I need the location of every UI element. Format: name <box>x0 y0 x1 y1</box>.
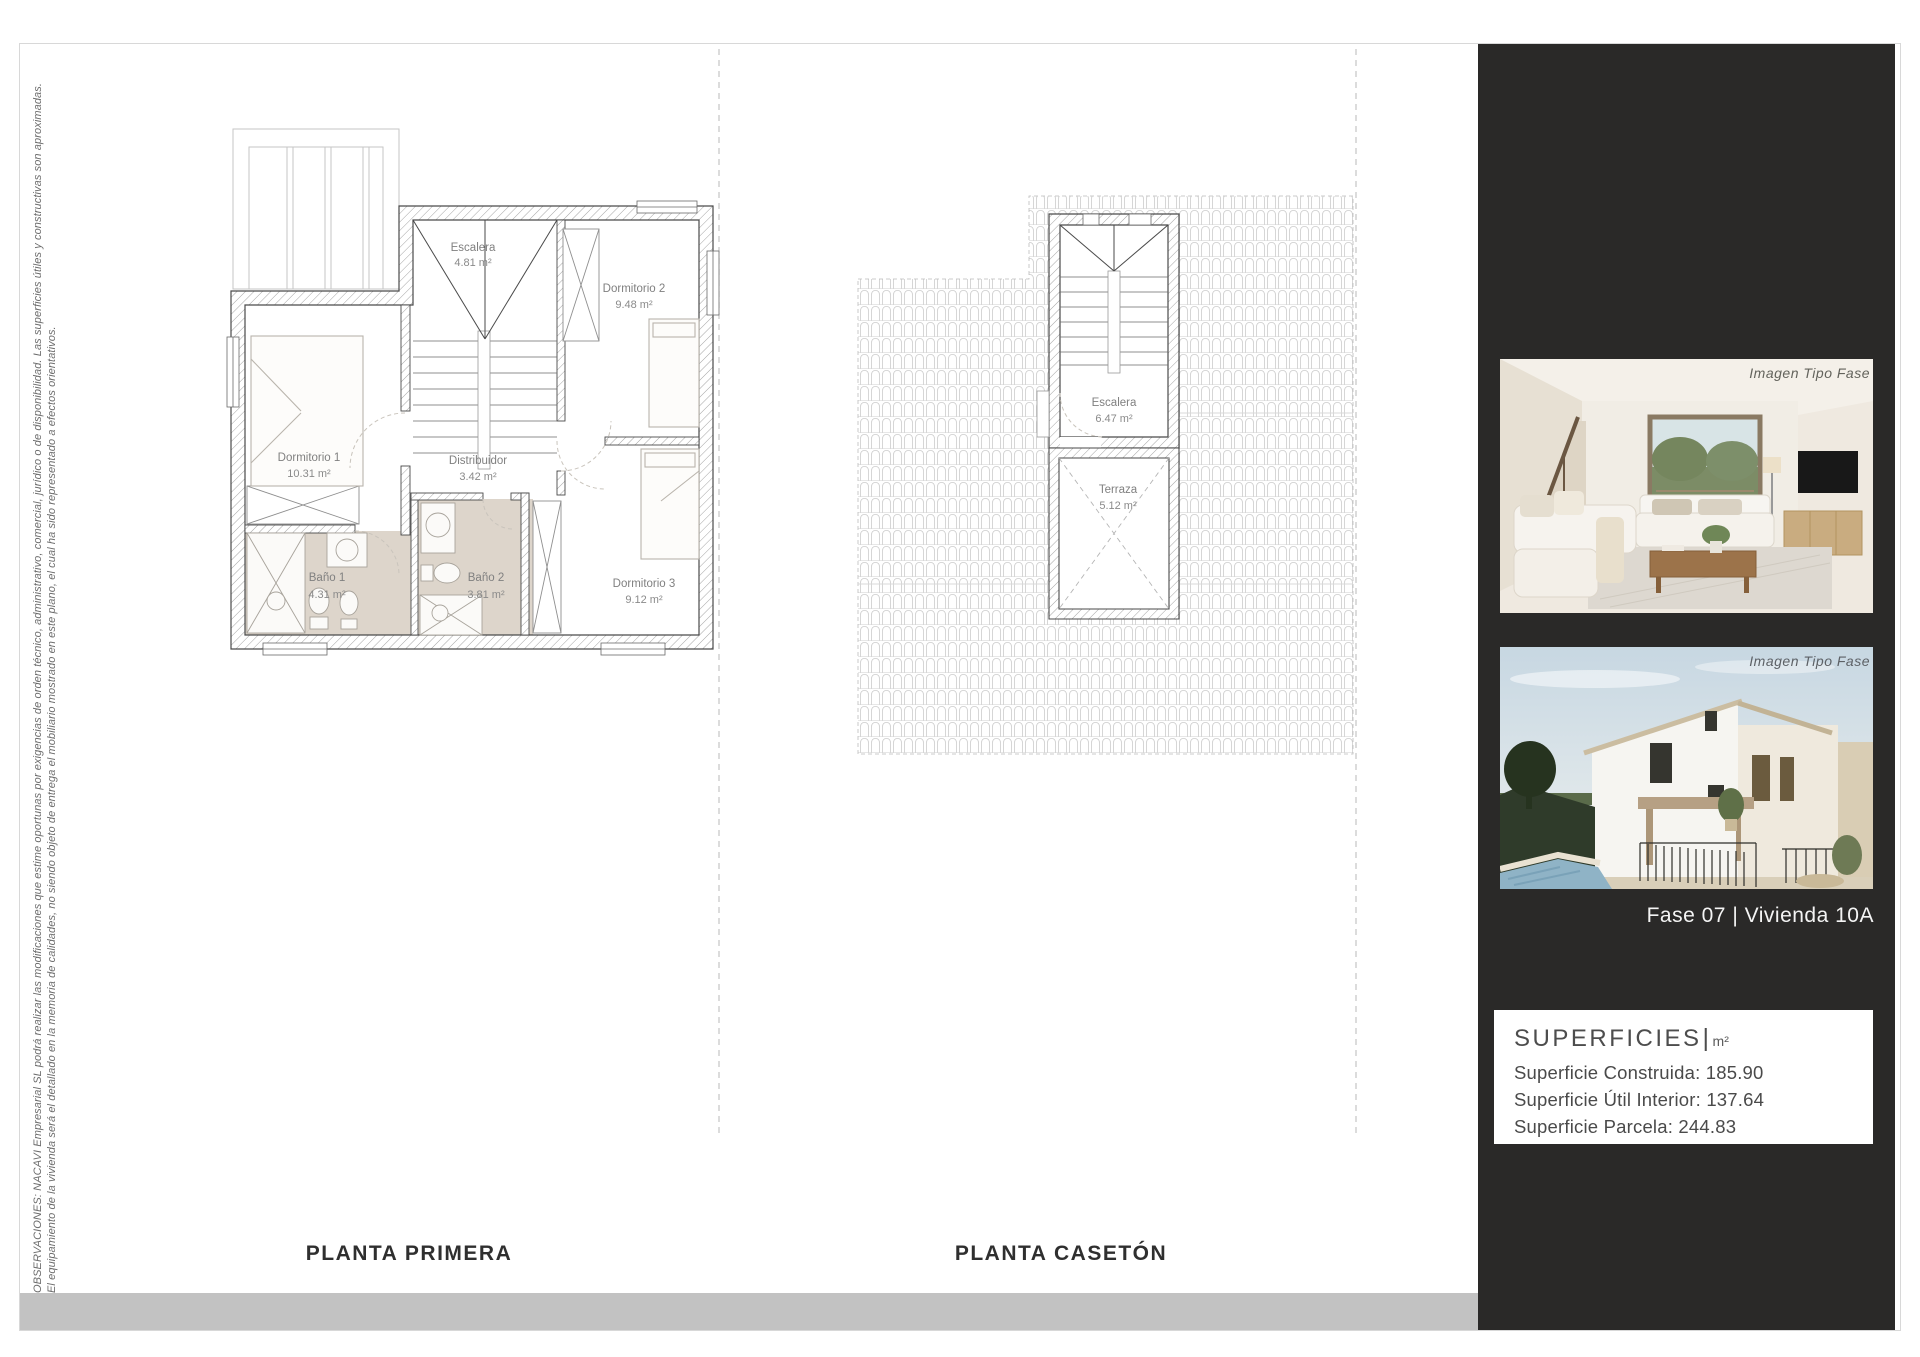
pergola-outline <box>233 129 399 289</box>
interior-illustration <box>1500 359 1873 613</box>
room-area-terraza: 5.12 m² <box>1099 500 1137 512</box>
plan-planta-primera: Escalera 4.81 m² Dormitorio 2 9.48 m² Do… <box>227 129 719 655</box>
caseton-door-niche <box>1037 391 1049 437</box>
room-area-dormitorio3: 9.12 m² <box>625 594 663 606</box>
unit-label: Fase 07 | Vivienda 10A <box>1647 904 1874 928</box>
room-area-bano2: 3.81 m² <box>467 589 505 601</box>
room-area-dormitorio1: 10.31 m² <box>287 468 331 480</box>
room-label-bano2: Baño 2 <box>468 572 504 584</box>
exterior-photo-caption: Imagen Tipo Fase <box>1749 653 1870 669</box>
superficies-panel: SUPERFICIES|m² Superficie Construida: 18… <box>1494 1010 1873 1144</box>
exterior-photo: Imagen Tipo Fase <box>1500 647 1873 889</box>
sidebar: Imagen Tipo Fase <box>1478 44 1895 1331</box>
plan-title-planta-primera: PLANTA PRIMERA <box>306 1242 513 1266</box>
brochure-page: OBSERVACIONES: NACAVI Empresarial SL pod… <box>19 43 1901 1331</box>
superficies-unit: m² <box>1713 1033 1729 1049</box>
room-label-terraza: Terraza <box>1099 484 1138 496</box>
superficie-parcela: Superficie Parcela: 244.83 <box>1514 1113 1873 1140</box>
room-label-escalera: Escalera <box>451 242 496 254</box>
superficies-separator: | <box>1702 1024 1713 1052</box>
plan-planta-caseton: Escalera 6.47 m² Terraza 5.12 m² <box>858 196 1353 754</box>
plan-title-planta-caseton: PLANTA CASETÓN <box>955 1242 1167 1266</box>
superficies-title: SUPERFICIES|m² <box>1514 1024 1873 1053</box>
room-area-distribuidor: 3.42 m² <box>459 471 497 483</box>
room-label-distribuidor: Distribuidor <box>449 455 507 467</box>
caseton-door-gap <box>1060 437 1101 448</box>
room-label-caseton-escalera: Escalera <box>1092 397 1137 409</box>
room-area-bano1: 4.31 m² <box>308 589 346 601</box>
exterior-illustration <box>1500 647 1873 889</box>
superficie-construida: Superficie Construida: 185.90 <box>1514 1059 1873 1086</box>
room-label-dormitorio1: Dormitorio 1 <box>278 452 341 464</box>
room-area-escalera: 4.81 m² <box>454 257 492 269</box>
superficies-lines: Superficie Construida: 185.90 Superficie… <box>1514 1059 1873 1140</box>
room-label-bano1: Baño 1 <box>309 572 345 584</box>
interior-photo: Imagen Tipo Fase <box>1500 359 1873 613</box>
room-area-caseton-escalera: 6.47 m² <box>1095 413 1133 425</box>
room-area-dormitorio2: 9.48 m² <box>615 299 653 311</box>
interior-photo-caption: Imagen Tipo Fase <box>1749 365 1870 381</box>
footer-bar <box>20 1293 1478 1330</box>
room-label-dormitorio2: Dormitorio 2 <box>603 283 666 295</box>
superficie-util-interior: Superficie Útil Interior: 137.64 <box>1514 1086 1873 1113</box>
superficies-title-text: SUPERFICIES <box>1514 1025 1702 1052</box>
room-label-dormitorio3: Dormitorio 3 <box>613 578 676 590</box>
